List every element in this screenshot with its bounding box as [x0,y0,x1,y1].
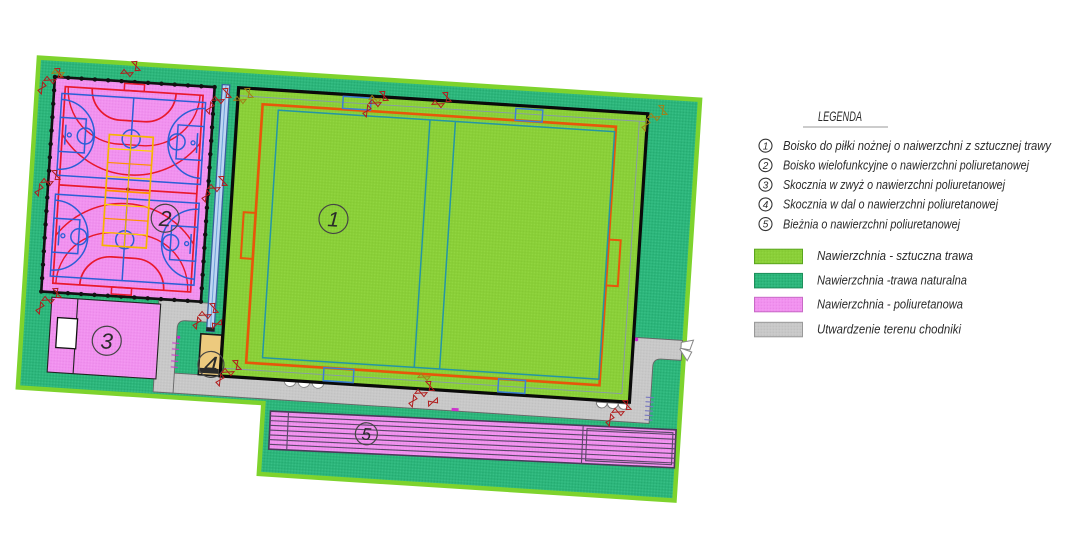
svg-text:LEGENDA: LEGENDA [818,109,862,124]
svg-text:Boisko wielofunkcyjne o nawier: Boisko wielofunkcyjne o nawierzchni poli… [783,159,1030,173]
svg-text:Nawierzchnia -trawa naturalna: Nawierzchnia -trawa naturalna [817,273,967,287]
svg-text:4: 4 [203,352,218,380]
svg-text:Bieżnia o nawierzchni poliuret: Bieżnia o nawierzchni poliuretanowej [783,217,961,231]
svg-text:Nawierzchnia - sztuczna trawa: Nawierzchnia - sztuczna trawa [817,249,973,263]
svg-text:3: 3 [100,328,115,354]
svg-text:5: 5 [361,425,372,445]
svg-text:Skocznia w dal o nawierzchni p: Skocznia w dal o nawierzchni poliuretano… [783,198,999,212]
svg-text:Boisko do piłki nożnej o naiwe: Boisko do piłki nożnej o naiwerzchni z s… [783,139,1052,153]
svg-text:3: 3 [763,180,769,191]
svg-text:2: 2 [157,206,172,232]
svg-text:2: 2 [762,161,769,172]
svg-text:1: 1 [763,141,769,152]
svg-text:1: 1 [327,208,340,232]
svg-text:4: 4 [763,200,769,211]
svg-text:Skocznia w zwyż o nawierzchni: Skocznia w zwyż o nawierzchni poliuretan… [783,178,1006,192]
svg-text:5: 5 [763,220,769,231]
svg-text:Nawierzchnia - poliuretanowa: Nawierzchnia - poliuretanowa [817,297,963,311]
svg-text:Utwardzenie terenu chodniki: Utwardzenie terenu chodniki [817,322,962,336]
